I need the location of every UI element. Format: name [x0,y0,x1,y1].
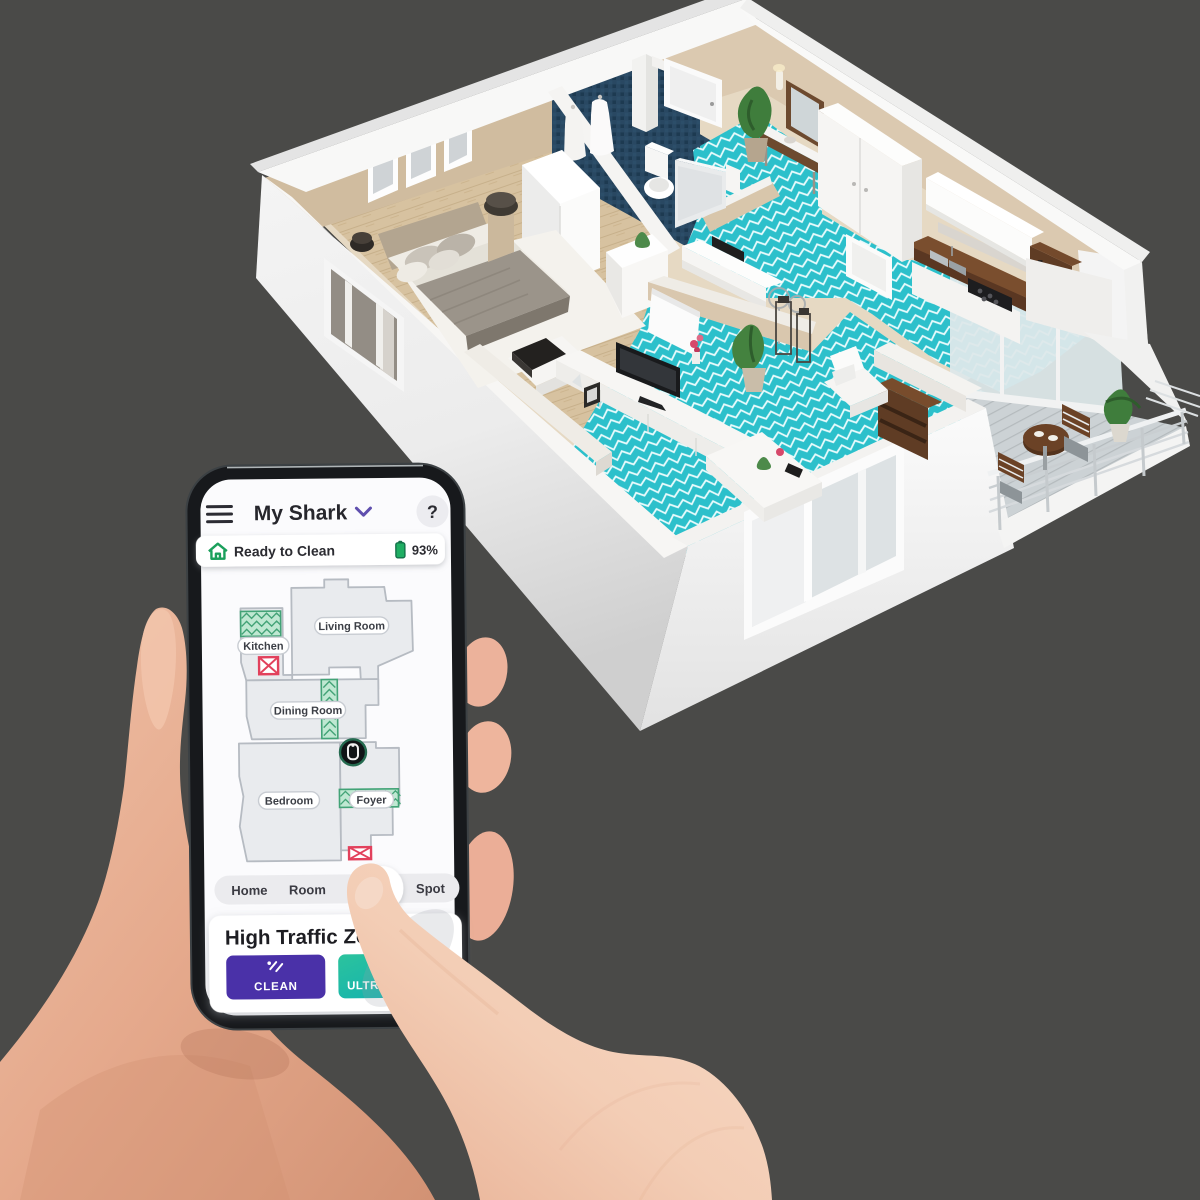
svg-text:Room: Room [289,882,326,897]
svg-text:?: ? [427,502,438,522]
svg-text:CLEAN: CLEAN [254,981,298,993]
svg-text:Foyer: Foyer [356,794,387,806]
svg-text:Spot: Spot [416,881,446,896]
svg-text:Ready to Clean: Ready to Clean [234,542,335,559]
svg-text:Dining Room: Dining Room [274,705,343,718]
svg-text:Home: Home [231,883,267,898]
svg-text:Living Room: Living Room [318,620,385,633]
svg-text:Kitchen: Kitchen [243,640,284,652]
svg-text:My Shark: My Shark [254,501,348,525]
svg-text:93%: 93% [412,542,439,557]
svg-text:Bedroom: Bedroom [265,795,314,808]
